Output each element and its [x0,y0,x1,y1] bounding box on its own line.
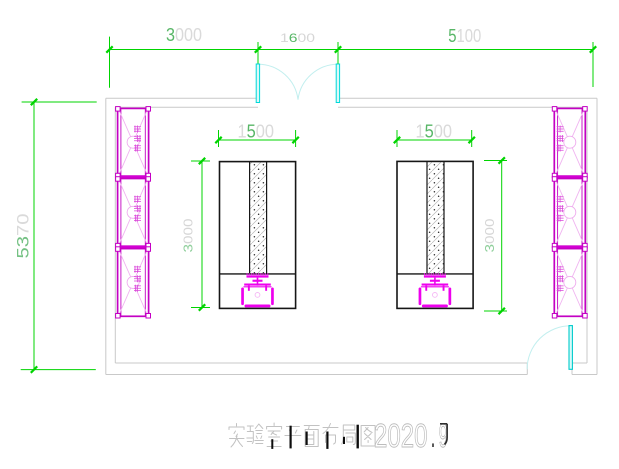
svg-text:5370: 5370 [15,214,33,259]
svg-text:3000: 3000 [483,218,497,252]
svg-text:1500: 1500 [238,120,275,141]
svg-text:1500: 1500 [416,120,453,141]
svg-text:2020: 2020 [374,417,428,454]
svg-text:1600: 1600 [280,33,315,45]
svg-text:3000: 3000 [166,24,202,45]
svg-text:3000: 3000 [182,218,196,252]
svg-text:.: . [431,417,436,454]
svg-text:5100: 5100 [448,25,481,46]
